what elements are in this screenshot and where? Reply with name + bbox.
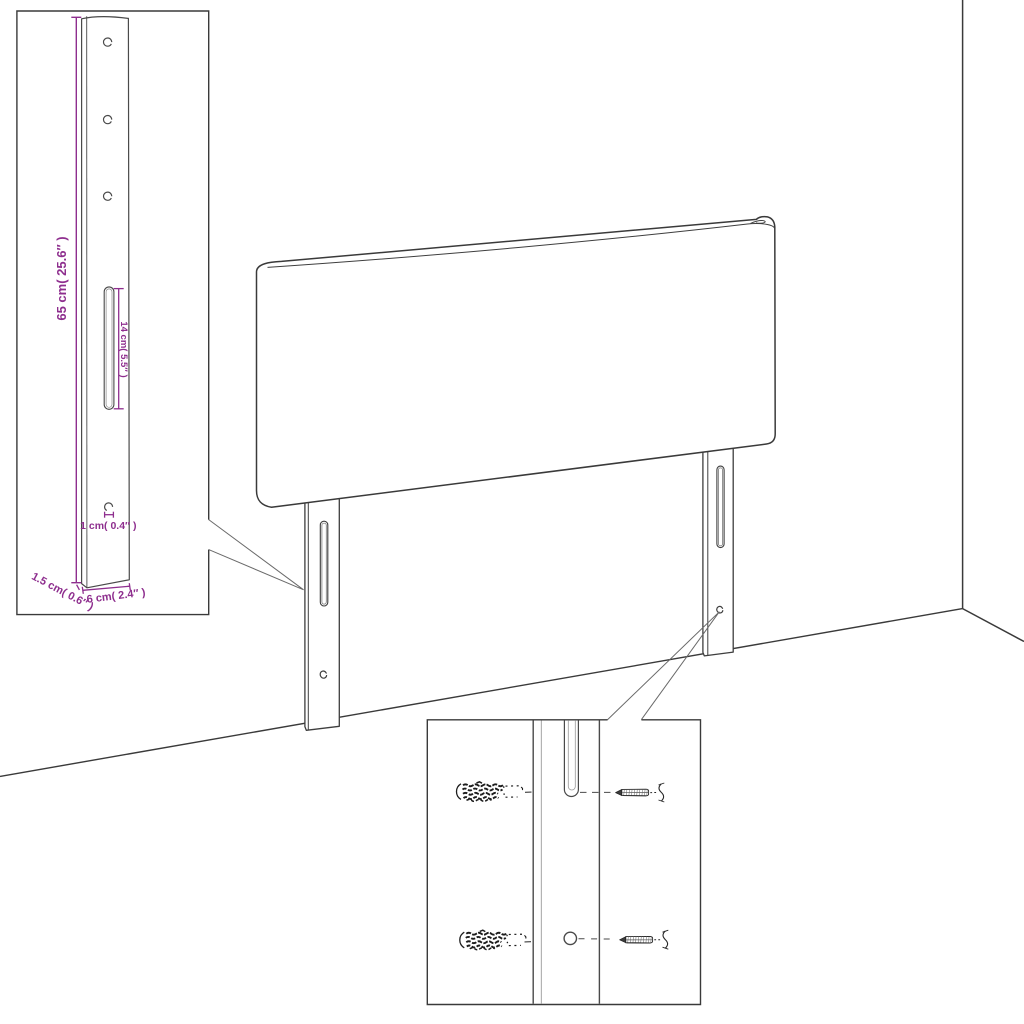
svg-text:14 cm( 5.5″ ): 14 cm( 5.5″ ): [118, 321, 129, 377]
svg-text:1 cm( 0.4″ ): 1 cm( 0.4″ ): [80, 520, 136, 532]
svg-text:65 cm( 25.6″ ): 65 cm( 25.6″ ): [54, 236, 69, 320]
